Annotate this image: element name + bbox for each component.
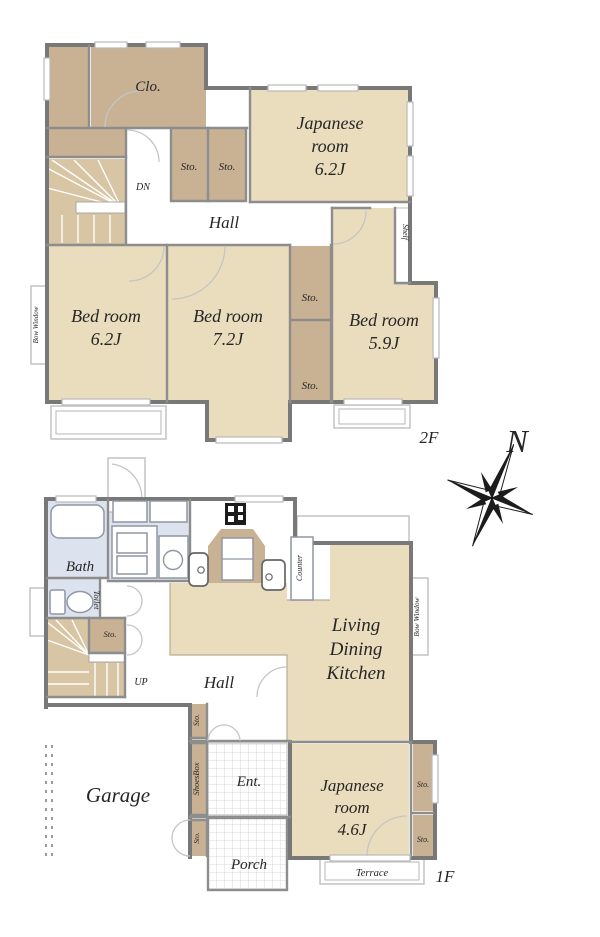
kitchen-window-bay <box>297 516 409 543</box>
floor-1f-label: 1F <box>436 867 456 886</box>
counter-label: Counter <box>295 554 304 581</box>
japanese-room-1f-label-1: Japanese <box>320 776 384 795</box>
hall-1f-label: Hall <box>203 673 235 692</box>
bow-window-2f-label: Bow Window <box>32 306 40 343</box>
ldk-label-3: Kitchen <box>325 663 385 684</box>
floor-1f: Bath Toilet Sto. UP Hall Counter Bow Win… <box>30 458 455 890</box>
compass-star <box>428 426 555 562</box>
bedroom2-label-1: Bed room <box>193 306 263 326</box>
entrance-label: Ent. <box>236 774 262 790</box>
storage-1f-r1-label: Sto. <box>417 780 429 789</box>
storage-2f-c-floor <box>291 246 331 319</box>
bedroom1-label-2: 6.2J <box>91 329 123 349</box>
washroom-cabinet-1 <box>113 501 147 522</box>
floor-2f: Clo. Japanese room 6.2J Sto. Sto. DN Hal… <box>31 42 439 447</box>
floorplan-page: Clo. Japanese room 6.2J Sto. Sto. DN Hal… <box>0 0 600 937</box>
stairs-down-label: DN <box>135 182 151 193</box>
bedroom3-floor <box>333 208 436 402</box>
storage-2f-b-label: Sto. <box>219 161 236 173</box>
porch-label: Porch <box>230 857 267 873</box>
compass: N <box>428 423 555 563</box>
japanese-room-1f-label-3: 4.6J <box>338 820 368 839</box>
toilet-bowl <box>67 592 93 613</box>
kitchen-sink-left <box>189 553 208 586</box>
stairs-2f-landing <box>76 202 125 213</box>
storage-1f-r1-floor <box>413 744 433 811</box>
shoesbox-label: ShoesBox <box>191 762 201 795</box>
storage-shoes-bottom-label: Sto. <box>192 832 201 844</box>
ldk-label-2: Dining <box>329 639 383 660</box>
shelf-label: Shelf <box>401 224 410 242</box>
vanity-sink <box>117 533 147 553</box>
ldk-label-1: Living <box>331 615 381 636</box>
floorplan-drawing: Clo. Japanese room 6.2J Sto. Sto. DN Hal… <box>0 0 600 937</box>
storage-2f-c-label: Sto. <box>302 292 319 304</box>
japanese-room-2f-label-3: 6.2J <box>315 159 347 179</box>
toilet-tank <box>50 590 65 614</box>
japanese-room-2f-label-1: Japanese <box>297 113 364 133</box>
bedroom2-label-2: 7.2J <box>213 329 245 349</box>
bedroom2-ext-floor <box>208 402 289 440</box>
washroom-cabinet-2 <box>150 501 187 522</box>
kitchen-sink-right <box>262 560 285 590</box>
closet-small-floor <box>47 129 126 157</box>
bath-label: Bath <box>66 559 94 575</box>
storage-1f-r2-label: Sto. <box>417 835 429 844</box>
storage-2f-d-label: Sto. <box>302 380 319 392</box>
living-top-floor <box>330 543 411 600</box>
bedroom3-label-1: Bed room <box>349 310 419 330</box>
toilet-window-bay <box>30 588 46 636</box>
toilet-label: Toilet <box>92 590 102 610</box>
storage-2f-a-label: Sto. <box>181 161 198 173</box>
hall-2f-label: Hall <box>208 213 240 232</box>
garage-label: Garage <box>86 783 150 807</box>
japanese-room-1f-label-2: room <box>334 798 369 817</box>
storage-shoes-top-label: Sto. <box>192 714 201 726</box>
bedroom3-label-2: 5.9J <box>369 333 401 353</box>
vanity-cabinet <box>117 556 147 574</box>
dining-floor <box>170 583 287 655</box>
bathtub <box>51 505 104 538</box>
bedroom1-label-1: Bed room <box>71 306 141 326</box>
closet-nook-floor <box>47 46 89 127</box>
storage-under-stairs-label: Sto. <box>104 629 117 639</box>
floor-2f-label: 2F <box>420 428 440 447</box>
bow-window-1f-label: Bow Window <box>412 597 421 636</box>
terrace-label: Terrace <box>356 868 389 879</box>
japanese-room-2f-label-2: room <box>311 136 348 156</box>
porch-floor <box>208 818 287 890</box>
floor-2f-fills <box>47 46 436 440</box>
stairs-up-label: UP <box>134 677 147 688</box>
closet-label: Clo. <box>135 79 160 95</box>
